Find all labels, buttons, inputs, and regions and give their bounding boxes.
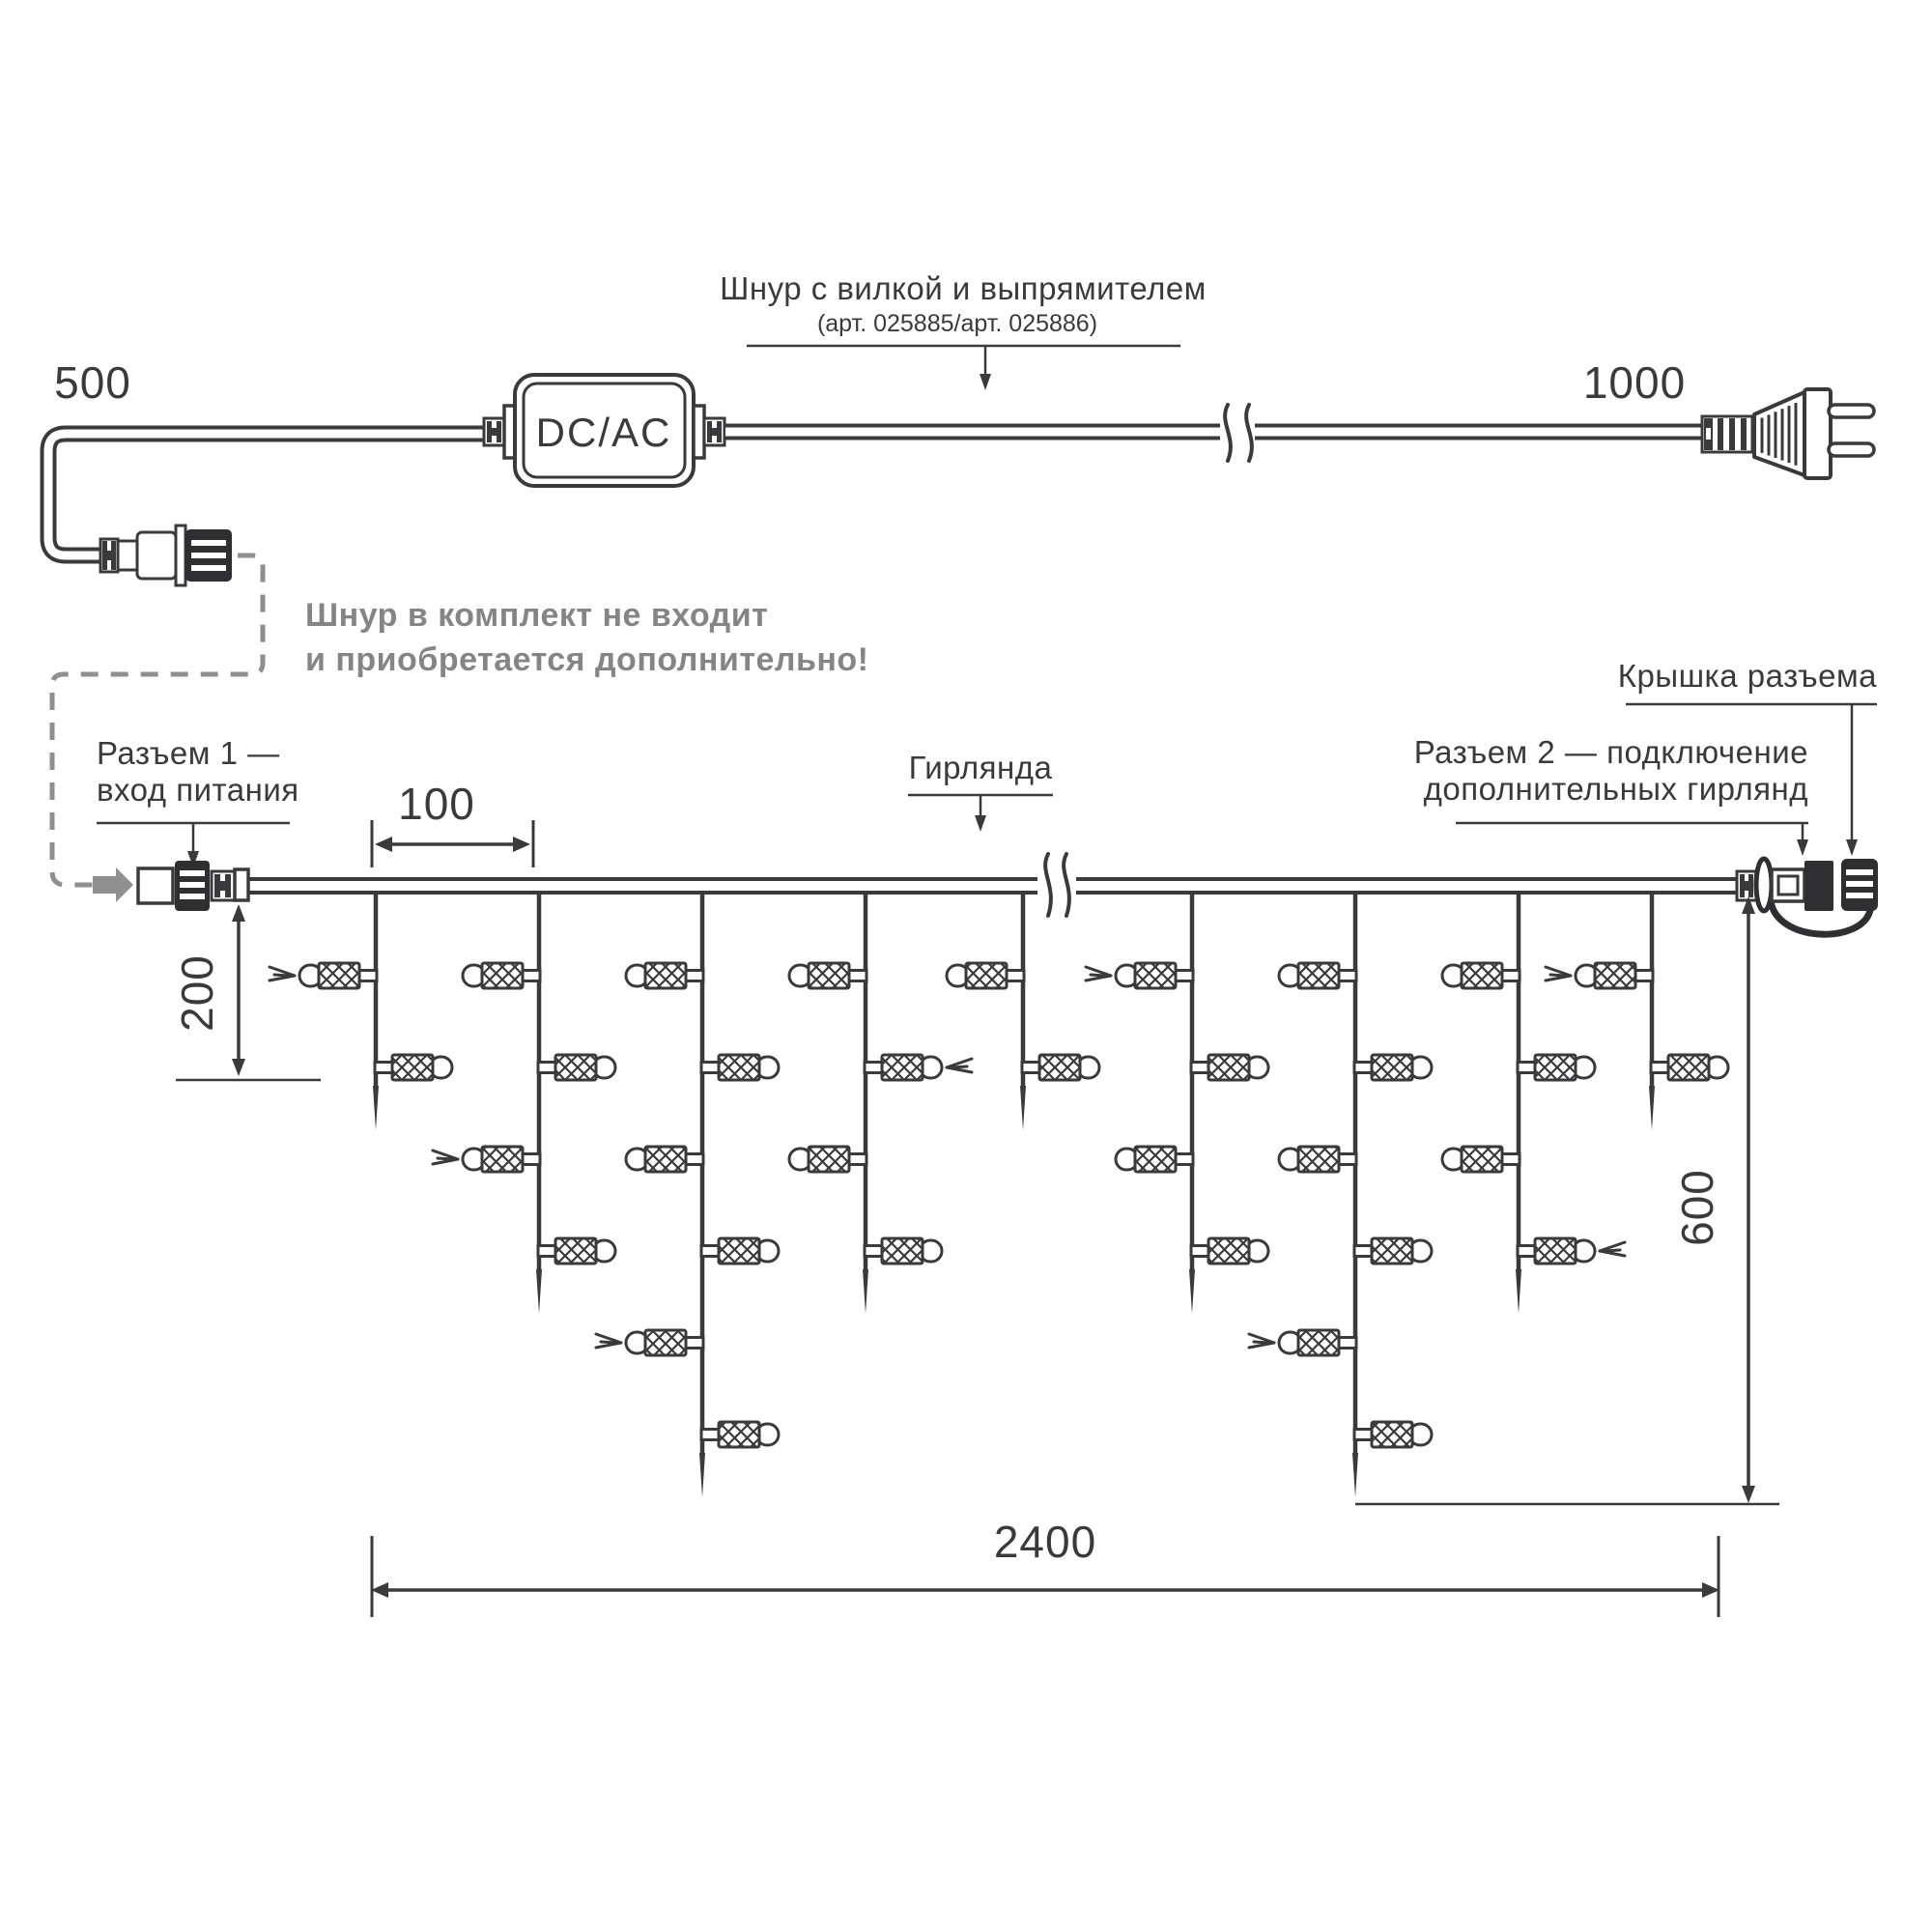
connector2-label-line2: дополнительных гирлянд — [1424, 771, 1808, 807]
garland-drop — [947, 893, 1099, 1130]
drop-tip — [1516, 1269, 1521, 1314]
bulb-icon — [1518, 1055, 1595, 1080]
dim-1000-label: 1000 — [1583, 357, 1686, 408]
cord-left-segment — [48, 434, 486, 555]
not-included-note: Шнур в комплект не входит и приобретаетс… — [305, 597, 869, 678]
bulb-icon — [1442, 963, 1520, 988]
bulb-icon — [865, 1055, 942, 1080]
bulb-icon — [626, 963, 703, 988]
dimension-600: 600 — [1355, 896, 1779, 1504]
bulb-icon — [1354, 1238, 1432, 1264]
light-direction-arrow-icon — [433, 1151, 458, 1164]
dim-200-label: 200 — [172, 954, 222, 1032]
dashed-path-arrow-icon — [93, 867, 133, 902]
leader-arrow-icon — [975, 815, 986, 832]
garland-drop — [1442, 893, 1595, 1314]
light-direction-arrow-icon — [1546, 967, 1571, 980]
plug-pin-bottom — [1829, 443, 1874, 456]
connector2-callout: Разъем 2 — подключение дополнительных ги… — [1414, 734, 1808, 856]
garland-main-wire — [246, 879, 1737, 893]
bulb-icon — [538, 1055, 615, 1080]
bulb-icon — [463, 1147, 540, 1172]
garland-break-icon — [1037, 854, 1076, 916]
connector-cap — [1841, 859, 1878, 911]
bulb-icon — [626, 1330, 703, 1355]
bulb-icon — [299, 963, 377, 988]
light-direction-arrow-icon — [947, 1059, 972, 1072]
garland-drop — [1116, 893, 1268, 1314]
garland-drop — [299, 893, 452, 1130]
dim-500-label: 500 — [54, 357, 131, 408]
plug-pin-top — [1829, 405, 1874, 417]
cord-subtitle: (арт. 025885/арт. 025886) — [817, 310, 1097, 337]
bulb-icon — [1651, 1055, 1728, 1080]
garland-diagram: Разъем 1 — вход питания Гирлянда Крышка … — [97, 658, 1878, 1617]
bulb-icon — [375, 1055, 452, 1080]
dimension-2400: 2400 — [371, 1517, 1719, 1617]
adapter-label: DC/AC — [536, 410, 672, 455]
bulb-icon — [789, 963, 867, 988]
cord-break-icon — [1225, 405, 1252, 461]
dim-2400-label: 2400 — [994, 1517, 1096, 1567]
light-direction-arrow-icon — [1600, 1242, 1625, 1256]
bulb-icon — [865, 1238, 942, 1264]
bulb-icon — [1116, 963, 1193, 988]
bulb-icon — [1279, 1147, 1356, 1172]
bulb-icon — [463, 963, 540, 988]
drop-tip — [1189, 1269, 1195, 1314]
garland-drop — [789, 893, 942, 1314]
note-line1: Шнур в комплект не входит — [305, 597, 768, 634]
cap-label: Крышка разъема — [1618, 658, 1877, 694]
bulb-icon — [626, 1147, 703, 1172]
garland-drop — [1576, 893, 1728, 1130]
dashed-connection-path — [52, 555, 263, 902]
dim-600-label: 600 — [1672, 1169, 1722, 1246]
bulb-icon — [1354, 1422, 1432, 1447]
light-direction-arrow-icon — [1086, 967, 1111, 980]
bulb-icon — [1442, 1147, 1520, 1172]
drop-tip — [1020, 1086, 1026, 1130]
bulb-icon — [1518, 1238, 1595, 1264]
diagram-canvas: 500 DC/AC — [0, 0, 1932, 1932]
bulb-icon — [789, 1147, 867, 1172]
bulb-icon — [1191, 1055, 1268, 1080]
leader-arrow-icon — [980, 374, 991, 390]
connector1-label-line1: Разъем 1 — — [97, 735, 280, 771]
drop-tip — [863, 1269, 868, 1314]
bulb-icon — [947, 963, 1024, 988]
drop-tip — [373, 1086, 379, 1130]
light-direction-arrow-icon — [270, 967, 295, 980]
bulb-icon — [538, 1238, 615, 1264]
mains-plug — [1702, 389, 1874, 478]
connector1-callout: Разъем 1 — вход питания — [97, 735, 299, 867]
light-direction-arrow-icon — [1249, 1334, 1274, 1348]
bulb-icon — [1116, 1147, 1193, 1172]
bulb-icon — [701, 1422, 779, 1447]
drop-tip — [1352, 1453, 1358, 1497]
bulb-icon — [1279, 1330, 1356, 1355]
connector1-label-line2: вход питания — [97, 772, 299, 808]
drop-tip — [699, 1453, 705, 1497]
garland-drop — [1279, 893, 1432, 1497]
garland-callout: Гирлянда — [908, 750, 1053, 832]
garland-label: Гирлянда — [909, 750, 1053, 785]
bulb-icon — [701, 1238, 779, 1264]
bulb-icon — [1354, 1055, 1432, 1080]
drop-tip — [536, 1269, 542, 1314]
bulb-icon — [1279, 963, 1356, 988]
cord-title-callout: Шнур с вилкой и выпрямителем (арт. 02588… — [720, 270, 1207, 390]
bulb-icon — [1576, 963, 1653, 988]
bulb-icon — [701, 1055, 779, 1080]
dimension-100: 100 — [372, 779, 533, 867]
bulb-icon — [1191, 1238, 1268, 1264]
connector2-label-line1: Разъем 2 — подключение — [1414, 734, 1808, 770]
garland-drops — [270, 893, 1728, 1497]
cord-right-segment — [725, 405, 1704, 461]
dim-100-label: 100 — [398, 779, 475, 829]
technical-diagram-page: 500 DC/AC — [0, 0, 1932, 1932]
cord-title: Шнур с вилкой и выпрямителем — [720, 270, 1207, 306]
bulb-icon — [1022, 1055, 1099, 1080]
garland-drop — [626, 893, 779, 1497]
drop-tip — [1649, 1086, 1655, 1130]
garland-connector2 — [1737, 859, 1878, 934]
light-direction-arrow-icon — [596, 1334, 621, 1348]
leader-arrow-icon — [1797, 839, 1808, 856]
leader-arrow-icon — [1846, 839, 1858, 856]
note-line2: и приобретается дополнительно! — [305, 641, 869, 678]
adapter-box: DC/AC — [484, 375, 724, 486]
garland-drop — [463, 893, 615, 1314]
garland-connector1 — [138, 861, 248, 911]
power-cord-diagram: 500 DC/AC — [48, 270, 1874, 902]
cord-output-connector — [100, 526, 232, 585]
dimension-200: 200 — [172, 904, 321, 1080]
